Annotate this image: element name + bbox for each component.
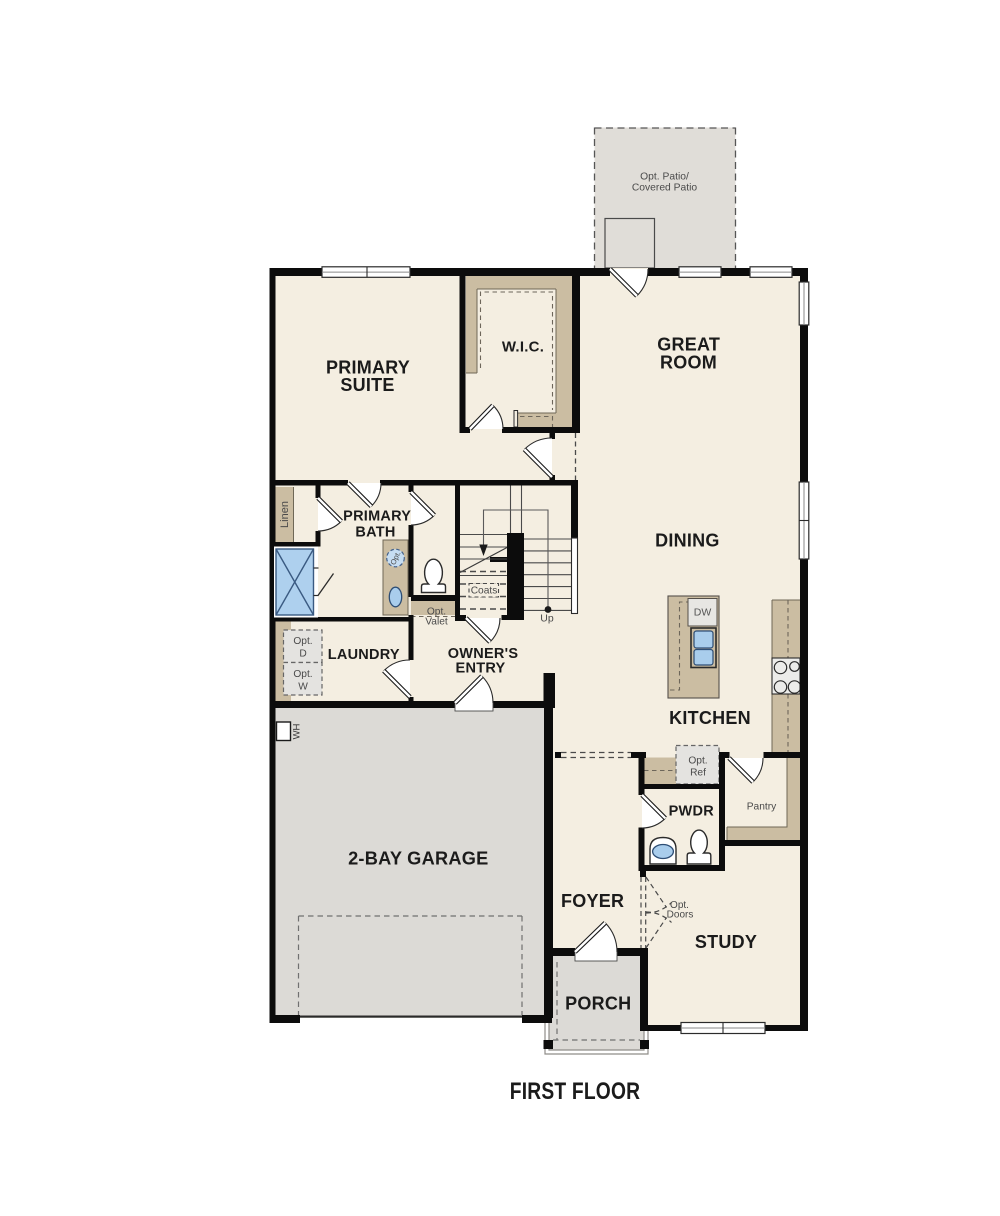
svg-text:Opt.: Opt. — [688, 756, 707, 767]
svg-text:STUDY: STUDY — [695, 932, 757, 952]
svg-text:LAUNDRY: LAUNDRY — [328, 647, 400, 663]
svg-text:Up: Up — [540, 613, 554, 625]
svg-text:Ref: Ref — [690, 768, 706, 779]
svg-text:SUITE: SUITE — [340, 375, 394, 395]
svg-text:Opt. Patio/: Opt. Patio/ — [640, 172, 689, 183]
svg-text:Pantry: Pantry — [747, 802, 777, 813]
svg-text:DINING: DINING — [655, 531, 720, 551]
svg-text:Covered Patio: Covered Patio — [632, 183, 698, 194]
svg-text:Valet: Valet — [425, 617, 448, 628]
svg-text:Opt.: Opt. — [293, 669, 312, 680]
svg-text:Linen: Linen — [279, 501, 291, 528]
svg-text:Opt.: Opt. — [293, 636, 312, 647]
svg-text:PORCH: PORCH — [565, 994, 631, 1014]
svg-text:Doors: Doors — [667, 910, 694, 921]
svg-text:ENTRY: ENTRY — [456, 661, 506, 677]
svg-text:DW: DW — [694, 607, 712, 619]
svg-text:2-BAY GARAGE: 2-BAY GARAGE — [348, 849, 488, 869]
svg-text:WH: WH — [292, 723, 303, 739]
svg-text:PWDR: PWDR — [669, 804, 715, 820]
svg-text:ROOM: ROOM — [660, 353, 717, 373]
svg-text:FOYER: FOYER — [561, 891, 624, 911]
svg-text:KITCHEN: KITCHEN — [669, 708, 751, 728]
svg-text:GREAT: GREAT — [657, 335, 720, 355]
svg-text:W: W — [298, 682, 308, 693]
svg-text:Coats: Coats — [471, 586, 498, 597]
svg-text:BATH: BATH — [355, 525, 395, 541]
svg-text:PRIMARY: PRIMARY — [343, 509, 411, 525]
svg-text:FIRST FLOOR: FIRST FLOOR — [510, 1078, 641, 1105]
svg-text:W.I.C.: W.I.C. — [502, 339, 544, 356]
svg-text:D: D — [299, 649, 306, 660]
